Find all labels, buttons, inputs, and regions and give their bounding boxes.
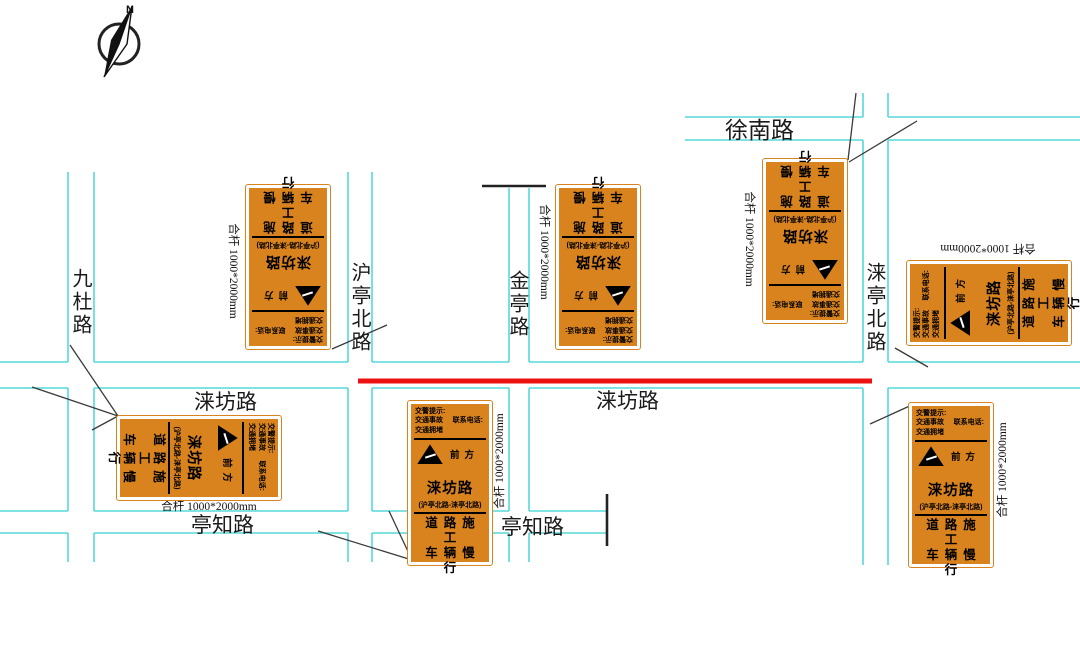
compass-north-letter: N bbox=[126, 4, 134, 16]
construction-sign: 交警提示: 交通事故 联系电话: 交通拥堵 前方 涞坊路 (沪亭北路-涞亭北路)… bbox=[116, 415, 282, 501]
sign-warning-text: 交警提示: 交通事故 联系电话: 交通拥堵 bbox=[912, 406, 990, 438]
sign-slow-line1: 道路施工 bbox=[411, 516, 489, 546]
construction-sign-jiudu-rotated: 交警提示: 交通事故 联系电话: 交通拥堵 前方 涞坊路 (沪亭北路-涞亭北路)… bbox=[116, 414, 282, 502]
road-label-hutingbei: 沪亭北路 bbox=[349, 262, 369, 354]
sign-warn-contacts: 交通事故 联系电话: bbox=[563, 324, 633, 333]
sign-road-block: 涞坊路 (沪亭北路-涞亭北路) bbox=[983, 264, 1016, 342]
sign-slow-line1: 道路施工 bbox=[249, 204, 327, 234]
sign-road-section: (沪亭北路-涞亭北路) bbox=[559, 240, 637, 250]
sign-slow-line2: 车辆慢行 bbox=[912, 548, 990, 578]
sign-ahead-row: 前方 bbox=[218, 419, 242, 497]
road-label-jiudu: 九杜路 bbox=[70, 268, 90, 337]
sign-warn-contacts: 交通事故 联系电话: bbox=[916, 418, 986, 427]
sign-divider-top bbox=[562, 310, 634, 312]
sign-warning-text: 交警提示: 交通事故 联系电话: 交通拥堵 bbox=[910, 264, 942, 342]
construction-sign-panel: 交警提示: 交通事故 联系电话: 交通拥堵 前方 涞坊路 (沪亭北路-涞亭北路)… bbox=[912, 406, 990, 564]
sign-divider-top bbox=[252, 310, 324, 312]
sign-slow-line2: 车辆慢行 bbox=[559, 175, 637, 205]
construction-warning-triangle-icon bbox=[295, 286, 321, 306]
sign-road-section: (沪亭北路-涞亭北路) bbox=[249, 240, 327, 250]
sign-road-section: (沪亭北路-涞亭北路) bbox=[766, 214, 844, 224]
sign-divider-bottom bbox=[562, 236, 634, 238]
construction-warning-triangle-icon bbox=[417, 444, 443, 464]
sign-warn-jam: 交通拥堵 bbox=[770, 289, 840, 298]
sign-warn-contacts: 交通事故 联系电话: bbox=[922, 268, 931, 338]
sign-slow-line2: 车辆慢行 bbox=[766, 149, 844, 179]
construction-warning-triangle-icon bbox=[918, 446, 944, 466]
road-laifang-lines bbox=[0, 362, 1080, 388]
sign-warn-title: 交警提示: bbox=[253, 334, 323, 343]
construction-sign: 交警提示: 交通事故 联系电话: 交通拥堵 前方 涞坊路 (沪亭北路-涞亭北路)… bbox=[908, 402, 994, 568]
sign-warn-accident: 交通事故 bbox=[916, 418, 944, 427]
sign-ahead-label: 前方 bbox=[776, 263, 805, 277]
sign-slow-line2: 车辆慢行 bbox=[411, 546, 489, 576]
construction-sign: 交警提示: 交通事故 联系电话: 交通拥堵 前方 涞坊路 (沪亭北路-涞亭北路)… bbox=[762, 158, 848, 324]
construction-sign-jinting-flipped: 交警提示: 交通事故 联系电话: 交通拥堵 前方 涞坊路 (沪亭北路-涞亭北路)… bbox=[555, 184, 641, 350]
sign-slow-line1: 道路施工 bbox=[912, 518, 990, 548]
sign-road-section: (沪亭北路-涞亭北路) bbox=[912, 502, 990, 512]
sign-warn-title: 交警提示: bbox=[415, 407, 485, 416]
sign-road-section: (沪亭北路-涞亭北路) bbox=[1006, 264, 1016, 342]
sign-road-name: 涞坊路 bbox=[411, 477, 489, 498]
construction-sign-panel: 交警提示: 交通事故 联系电话: 交通拥堵 前方 涞坊路 (沪亭北路-涞亭北路)… bbox=[766, 162, 844, 320]
sign-warn-title: 交警提示: bbox=[770, 308, 840, 317]
sign-warn-jam: 交通拥堵 bbox=[931, 268, 940, 338]
sign-road-block: 涞坊路 (沪亭北路-涞亭北路) bbox=[766, 214, 844, 247]
construction-warning-triangle-icon bbox=[605, 286, 631, 306]
sign-slow-text: 道路施工 车辆慢行 bbox=[912, 516, 990, 580]
road-label-xunan: 徐南路 bbox=[725, 111, 794, 145]
construction-sign-panel: 交警提示: 交通事故 联系电话: 交通拥堵 前方 涞坊路 (沪亭北路-涞亭北路)… bbox=[411, 404, 489, 562]
sign-warn-accident: 交通事故 bbox=[605, 324, 633, 333]
road-label-laifang-east: 涞坊路 bbox=[596, 385, 659, 415]
sign-road-block: 涞坊路 (沪亭北路-涞亭北路) bbox=[559, 240, 637, 273]
sign-road-block: 涞坊路 (沪亭北路-涞亭北路) bbox=[249, 240, 327, 273]
road-label-tingzhi-east: 亭知路 bbox=[501, 511, 564, 541]
traffic-construction-plan: N 徐南路 涞坊路 涞坊路 亭知路 亭知路 九杜路 沪亭北路 金亭路 涞亭北路 … bbox=[0, 0, 1080, 648]
construction-warning-triangle-icon bbox=[950, 310, 970, 336]
sign-road-block: 涞坊路 (沪亭北路-涞亭北路) bbox=[411, 477, 489, 510]
sign-road-name: 涞坊路 bbox=[983, 264, 1004, 342]
road-hutingbei-lines bbox=[348, 172, 372, 562]
sign-warn-phone: 联系电话: bbox=[922, 270, 931, 300]
construction-sign-xunan-flipped: 交警提示: 交通事故 联系电话: 交通拥堵 前方 涞坊路 (沪亭北路-涞亭北路)… bbox=[762, 158, 848, 324]
sign-warn-accident: 交通事故 bbox=[812, 298, 840, 307]
sign-road-name: 涞坊路 bbox=[912, 479, 990, 500]
sign-warn-phone: 联系电话: bbox=[772, 298, 802, 307]
construction-sign-panel: 交警提示: 交通事故 联系电话: 交通拥堵 前方 涞坊路 (沪亭北路-涞亭北路)… bbox=[249, 188, 327, 346]
sign-slow-line1: 道路施工 bbox=[1022, 264, 1052, 342]
sign-warn-contacts: 交通事故 联系电话: bbox=[256, 423, 265, 493]
pole-size-label: 合杆 1000*2000mm bbox=[994, 410, 1010, 530]
sign-warn-contacts: 交通事故 联系电话: bbox=[415, 416, 485, 425]
construction-sign: 交警提示: 交通事故 联系电话: 交通拥堵 前方 涞坊路 (沪亭北路-涞亭北路)… bbox=[555, 184, 641, 350]
road-label-laifang-west: 涞坊路 bbox=[194, 386, 257, 416]
sign-ahead-label: 前方 bbox=[569, 289, 598, 303]
sign-ahead-row: 前方 bbox=[946, 264, 970, 342]
sign-ahead-row: 前方 bbox=[249, 286, 327, 310]
sign-warn-jam: 交通拥堵 bbox=[916, 428, 986, 437]
sign-road-section: (沪亭北路-涞亭北路) bbox=[172, 419, 182, 497]
sign-road-name: 涞坊路 bbox=[559, 252, 637, 273]
sign-warn-phone: 联系电话: bbox=[565, 324, 595, 333]
sign-ahead-row: 前方 bbox=[766, 260, 844, 284]
sign-warn-accident: 交通事故 bbox=[295, 324, 323, 333]
sign-warn-title: 交警提示: bbox=[916, 409, 986, 418]
sign-slow-line1: 道路施工 bbox=[766, 178, 844, 208]
sign-warning-text: 交警提示: 交通事故 联系电话: 交通拥堵 bbox=[411, 404, 489, 436]
sign-slow-text: 道路施工 车辆慢行 bbox=[411, 514, 489, 578]
construction-sign-hutingbei-flipped: 交警提示: 交通事故 联系电话: 交通拥堵 前方 涞坊路 (沪亭北路-涞亭北路)… bbox=[245, 184, 331, 350]
sign-warning-text: 交警提示: 交通事故 联系电话: 交通拥堵 bbox=[246, 419, 278, 497]
construction-sign-panel: 交警提示: 交通事故 联系电话: 交通拥堵 前方 涞坊路 (沪亭北路-涞亭北路)… bbox=[559, 188, 637, 346]
sign-divider-top bbox=[242, 422, 244, 494]
sign-road-block: 涞坊路 (沪亭北路-涞亭北路) bbox=[172, 419, 205, 497]
construction-sign: 交警提示: 交通事故 联系电话: 交通拥堵 前方 涞坊路 (沪亭北路-涞亭北路)… bbox=[407, 400, 493, 566]
sign-slow-text: 道路施工 车辆慢行 bbox=[559, 172, 637, 236]
sign-warn-jam: 交通拥堵 bbox=[415, 426, 485, 435]
sign-warn-jam: 交通拥堵 bbox=[253, 315, 323, 324]
pole-size-label: 合杆 1000*2000mm bbox=[226, 211, 242, 331]
construction-warning-triangle-icon bbox=[218, 425, 238, 451]
sign-divider-bottom bbox=[168, 422, 170, 494]
pole-size-label: 合杆 1000*2000mm bbox=[928, 241, 1048, 257]
sign-warn-phone: 联系电话: bbox=[256, 461, 265, 491]
sign-ahead-row: 前方 bbox=[559, 286, 637, 310]
sign-warn-phone: 联系电话: bbox=[954, 418, 984, 427]
sign-ahead-row: 前方 bbox=[912, 442, 990, 466]
sign-slow-line2: 车辆慢行 bbox=[1051, 264, 1080, 342]
road-jiudu-lines bbox=[68, 172, 94, 562]
sign-warn-contacts: 交通事故 联系电话: bbox=[770, 298, 840, 307]
sign-warning-text: 交警提示: 交通事故 联系电话: 交通拥堵 bbox=[249, 314, 327, 346]
sign-warn-contacts: 交通事故 联系电话: bbox=[253, 324, 323, 333]
sign-ahead-label: 前方 bbox=[221, 458, 235, 487]
construction-sign-laitingbei-upright: 交警提示: 交通事故 联系电话: 交通拥堵 前方 涞坊路 (沪亭北路-涞亭北路)… bbox=[908, 402, 994, 568]
sign-slow-text: 道路施工 车辆慢行 bbox=[766, 146, 844, 210]
sign-warn-accident: 交通事故 bbox=[922, 310, 931, 338]
construction-sign-panel: 交警提示: 交通事故 联系电话: 交通拥堵 前方 涞坊路 (沪亭北路-涞亭北路)… bbox=[120, 419, 278, 497]
sign-warn-jam: 交通拥堵 bbox=[563, 315, 633, 324]
sign-road-name: 涞坊路 bbox=[249, 252, 327, 273]
construction-sign: 交警提示: 交通事故 联系电话: 交通拥堵 前方 涞坊路 (沪亭北路-涞亭北路)… bbox=[245, 184, 331, 350]
sign-slow-line2: 车辆慢行 bbox=[249, 175, 327, 205]
sign-warn-accident: 交通事故 bbox=[415, 416, 443, 425]
sign-ahead-label: 前方 bbox=[953, 274, 967, 303]
sign-slow-text: 道路施工 车辆慢行 bbox=[1020, 264, 1080, 342]
construction-sign-panel: 交警提示: 交通事故 联系电话: 交通拥堵 前方 涞坊路 (沪亭北路-涞亭北路)… bbox=[910, 264, 1068, 342]
road-label-jinting: 金亭路 bbox=[507, 270, 527, 339]
sign-divider-bottom bbox=[252, 236, 324, 238]
sign-warn-title: 交警提示: bbox=[913, 268, 922, 338]
sign-slow-line2: 车辆慢行 bbox=[107, 419, 137, 497]
sign-divider-bottom bbox=[769, 210, 841, 212]
sign-slow-text: 道路施工 车辆慢行 bbox=[249, 172, 327, 236]
sign-warn-jam: 交通拥堵 bbox=[247, 423, 256, 493]
sign-road-name: 涞坊路 bbox=[766, 226, 844, 247]
sign-ahead-label: 前方 bbox=[259, 289, 288, 303]
sign-warn-phone: 联系电话: bbox=[255, 324, 285, 333]
sign-divider-top bbox=[769, 284, 841, 286]
sign-road-section: (沪亭北路-涞亭北路) bbox=[411, 500, 489, 510]
sign-warn-title: 交警提示: bbox=[563, 334, 633, 343]
sign-slow-line1: 道路施工 bbox=[136, 419, 166, 497]
north-compass-icon: N bbox=[99, 4, 139, 77]
sign-slow-text: 道路施工 车辆慢行 bbox=[104, 419, 168, 497]
pole-size-label: 合杆 1000*2000mm bbox=[491, 401, 507, 521]
construction-sign-tingzhi-upright: 交警提示: 交通事故 联系电话: 交通拥堵 前方 涞坊路 (沪亭北路-涞亭北路)… bbox=[407, 400, 493, 566]
sign-ahead-label: 前方 bbox=[450, 447, 479, 461]
sign-road-name: 涞坊路 bbox=[184, 419, 205, 497]
pole-size-label: 合杆 1000*2000mm bbox=[742, 179, 758, 299]
road-jinting-lines bbox=[509, 188, 529, 562]
construction-sign: 交警提示: 交通事故 联系电话: 交通拥堵 前方 涞坊路 (沪亭北路-涞亭北路)… bbox=[906, 260, 1072, 346]
sign-warn-phone: 联系电话: bbox=[453, 416, 483, 425]
sign-warning-text: 交警提示: 交通事故 联系电话: 交通拥堵 bbox=[766, 288, 844, 320]
sign-ahead-label: 前方 bbox=[951, 449, 980, 463]
road-label-laitingbei: 涞亭北路 bbox=[864, 262, 884, 354]
sign-ahead-row: 前方 bbox=[411, 440, 489, 464]
sign-warning-text: 交警提示: 交通事故 联系电话: 交通拥堵 bbox=[559, 314, 637, 346]
construction-sign-laitingbei-rotated: 交警提示: 交通事故 联系电话: 交通拥堵 前方 涞坊路 (沪亭北路-涞亭北路)… bbox=[905, 259, 1072, 347]
sign-warn-title: 交警提示: bbox=[266, 423, 275, 493]
construction-warning-triangle-icon bbox=[812, 260, 838, 280]
sign-warn-accident: 交通事故 bbox=[256, 423, 265, 451]
sign-slow-line1: 道路施工 bbox=[559, 204, 637, 234]
pole-size-label: 合杆 1000*2000mm bbox=[537, 192, 553, 312]
sign-road-block: 涞坊路 (沪亭北路-涞亭北路) bbox=[912, 479, 990, 512]
